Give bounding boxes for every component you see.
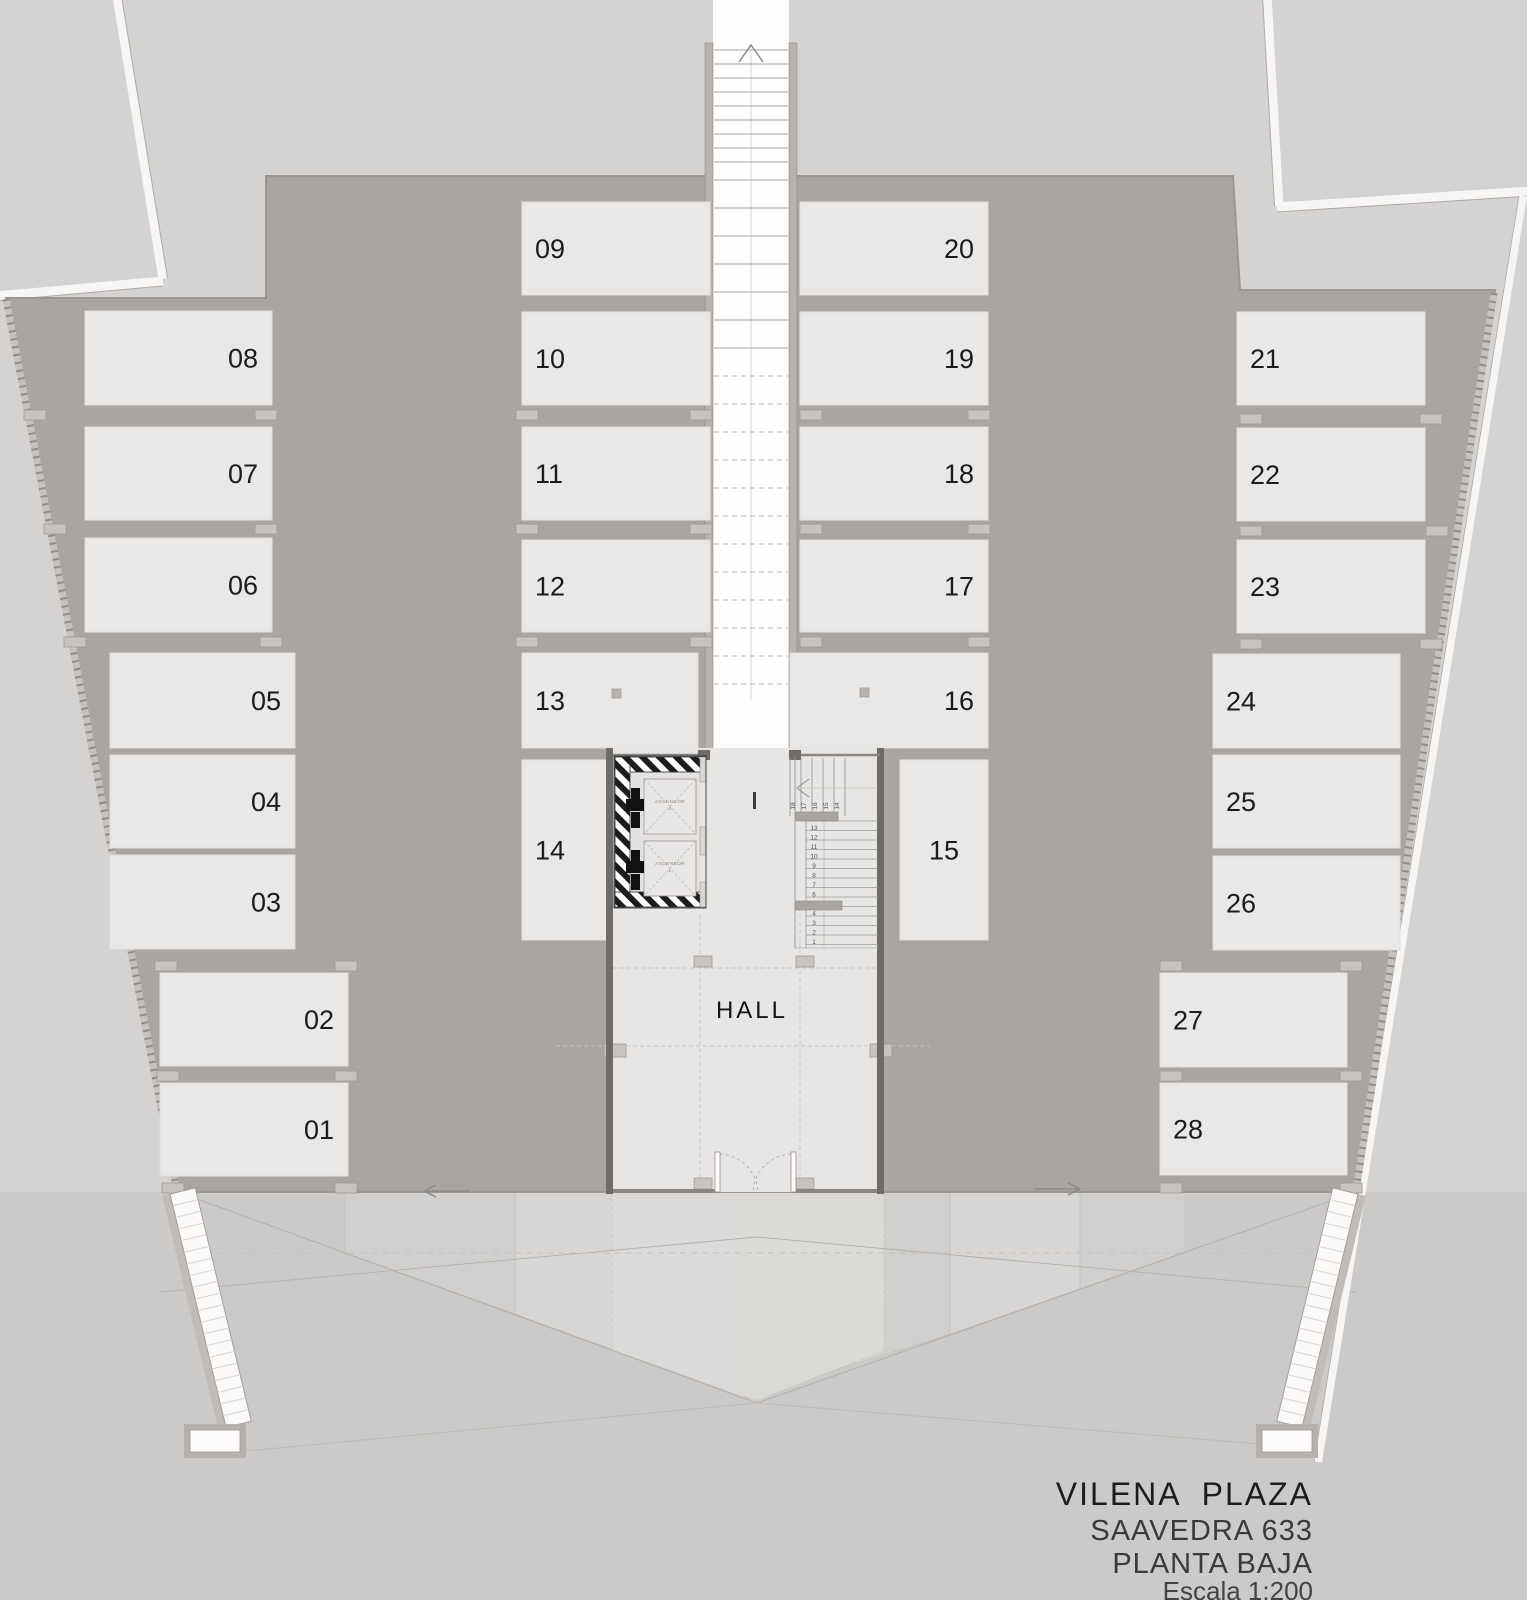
parking-space-06: 06 <box>85 538 272 632</box>
elevator-number: 2 <box>668 806 671 812</box>
parking-space-label: 03 <box>251 888 281 918</box>
column-marker <box>335 1071 357 1081</box>
parking-space-label: 04 <box>251 787 281 817</box>
parking-space-label: 05 <box>251 686 281 716</box>
parking-space-label: 06 <box>228 571 258 601</box>
column-marker <box>1160 961 1182 971</box>
parking-space-05: 05 <box>110 653 295 748</box>
parking-space-13: 13 <box>522 653 698 748</box>
elevator-shaft: ASCENSOR 2 ASCENSOR 1 <box>614 756 706 908</box>
stair-step-number: 9 <box>812 863 816 870</box>
column-marker <box>44 524 66 534</box>
door-operator-icon <box>626 861 644 873</box>
column-marker <box>255 410 277 420</box>
stair-step-number: 11 <box>811 844 818 851</box>
column-marker <box>335 1183 357 1193</box>
parking-space-label: 25 <box>1226 787 1256 817</box>
stair-step-number: 1 <box>812 939 816 946</box>
parking-space-18: 18 <box>800 427 988 520</box>
column-marker <box>1420 639 1442 649</box>
column-marker <box>24 410 46 420</box>
parking-space-label: 01 <box>304 1115 334 1145</box>
column-dot <box>612 689 621 698</box>
parking-space-label: 02 <box>304 1005 334 1035</box>
parking-space-label: 23 <box>1250 572 1280 602</box>
elevator-label: ASCENSOR <box>655 799 685 805</box>
stair-step-number: 13 <box>810 825 818 832</box>
stair-landing-bar <box>796 812 838 821</box>
parking-space-label: 26 <box>1226 889 1256 919</box>
parking-space-17: 17 <box>800 540 988 632</box>
parking-space-19: 19 <box>800 312 988 405</box>
parking-space-22: 22 <box>1237 428 1425 521</box>
stair-step-number: 2 <box>812 930 816 937</box>
parking-space-21: 21 <box>1237 312 1425 405</box>
stair-step-number: 17 <box>801 802 808 810</box>
stair-step-number: 3 <box>812 920 816 927</box>
stair-step-number: 15 <box>823 802 830 810</box>
parking-space-label: 13 <box>535 686 565 716</box>
column-marker <box>800 524 822 534</box>
column-marker <box>1240 639 1262 649</box>
column-marker <box>690 524 712 534</box>
parking-space-label: 21 <box>1250 344 1280 374</box>
column-marker <box>157 1071 179 1081</box>
parking-space-03: 03 <box>110 855 295 949</box>
parking-space-11: 11 <box>522 427 710 520</box>
parking-space-label: 11 <box>535 459 563 489</box>
parking-space-label: 28 <box>1173 1115 1203 1145</box>
parking-space-label: 22 <box>1250 460 1280 490</box>
parking-space-09: 09 <box>522 202 710 295</box>
column-marker <box>968 637 990 647</box>
floor-plan-page: 0102030405060708091011121314151617181920… <box>0 0 1527 1600</box>
parking-space-15: 15 <box>900 760 988 940</box>
door-operator-icon <box>631 812 640 828</box>
parking-space-label: 07 <box>228 459 258 489</box>
column-marker <box>800 410 822 420</box>
stair-landing-bar <box>796 901 842 910</box>
column-marker <box>516 410 538 420</box>
column-marker <box>690 410 712 420</box>
parking-space-16: 16 <box>790 653 988 748</box>
parking-space-04: 04 <box>110 755 295 848</box>
column-marker <box>1240 414 1262 424</box>
stair-step-number: 10 <box>810 854 818 861</box>
column-marker <box>1420 414 1442 424</box>
stair-step-number: 8 <box>812 873 816 880</box>
parking-space-20: 20 <box>800 202 988 295</box>
elevator-number: 1 <box>668 868 671 874</box>
floor-plan-drawing: 0102030405060708091011121314151617181920… <box>0 0 1527 1600</box>
parking-space-27: 27 <box>1160 973 1347 1067</box>
elevator-label: ASCENSOR <box>655 861 685 867</box>
project-title: VILENA PLAZA <box>1056 1476 1313 1512</box>
parking-space-26: 26 <box>1213 856 1400 950</box>
column-marker <box>155 961 177 971</box>
parking-space-label: 10 <box>535 344 565 374</box>
stair-step-number: 12 <box>810 835 818 842</box>
door-operator-icon <box>626 799 644 811</box>
parking-space-07: 07 <box>85 427 272 520</box>
parking-space-23: 23 <box>1237 540 1425 633</box>
column-marker <box>1160 1071 1182 1081</box>
ramp-wall-right <box>789 43 797 758</box>
parking-space-label: 24 <box>1226 687 1256 717</box>
parking-space-label: 27 <box>1173 1006 1203 1036</box>
parking-space-10: 10 <box>522 312 710 405</box>
project-address: SAAVEDRA 633 <box>1090 1515 1313 1547</box>
parking-space-label: 18 <box>944 459 974 489</box>
parking-space-label: 12 <box>535 572 565 602</box>
parking-space-14: 14 <box>522 760 610 940</box>
hall-wall-right <box>877 748 884 1194</box>
parking-space-12: 12 <box>522 540 710 632</box>
parking-space-28: 28 <box>1160 1083 1347 1175</box>
column-marker <box>260 637 282 647</box>
scale-label: Escala 1:200 <box>1163 1576 1313 1600</box>
column-marker <box>335 961 357 971</box>
column-marker <box>1240 526 1262 536</box>
column-dot <box>860 688 869 697</box>
stair-step-number: 18 <box>790 802 797 810</box>
stair-step-number: 7 <box>812 882 816 889</box>
stair-step-number: 6 <box>812 892 816 899</box>
parking-space-25: 25 <box>1213 755 1400 848</box>
parking-space-24: 24 <box>1213 654 1400 748</box>
parking-space-label: 08 <box>228 344 258 374</box>
column-marker <box>800 637 822 647</box>
parking-space-02: 02 <box>160 973 348 1066</box>
parking-space-label: 15 <box>929 836 959 866</box>
column-marker <box>968 410 990 420</box>
vehicle-ramp <box>705 0 797 758</box>
column-marker <box>690 637 712 647</box>
door-operator-icon <box>631 874 640 890</box>
parking-space-label: 16 <box>944 686 974 716</box>
parking-space-01: 01 <box>160 1083 348 1176</box>
column-marker <box>64 637 86 647</box>
column-marker <box>516 524 538 534</box>
column-marker <box>1160 1183 1182 1193</box>
hall-wall-left <box>606 748 613 1194</box>
parking-space-label: 20 <box>944 234 974 264</box>
parking-space-label: 09 <box>535 234 565 264</box>
stair-step-number: 16 <box>812 802 819 810</box>
parking-space-label: 17 <box>944 572 974 602</box>
column-marker <box>1340 961 1362 971</box>
parking-space-label: 14 <box>535 836 565 866</box>
hall: HALL <box>556 748 930 1194</box>
stair-step-number: 14 <box>834 802 841 810</box>
survey-mark <box>753 792 756 809</box>
column-marker <box>255 524 277 534</box>
shaft-wall-left <box>615 757 630 907</box>
hall-label: HALL <box>716 997 788 1024</box>
column-marker <box>968 524 990 534</box>
parking-space-label: 19 <box>944 344 974 374</box>
column-marker <box>516 637 538 647</box>
column-marker <box>1426 526 1448 536</box>
parking-space-08: 08 <box>85 311 272 405</box>
stair-step-number: 4 <box>812 911 816 918</box>
column-marker <box>1340 1071 1362 1081</box>
